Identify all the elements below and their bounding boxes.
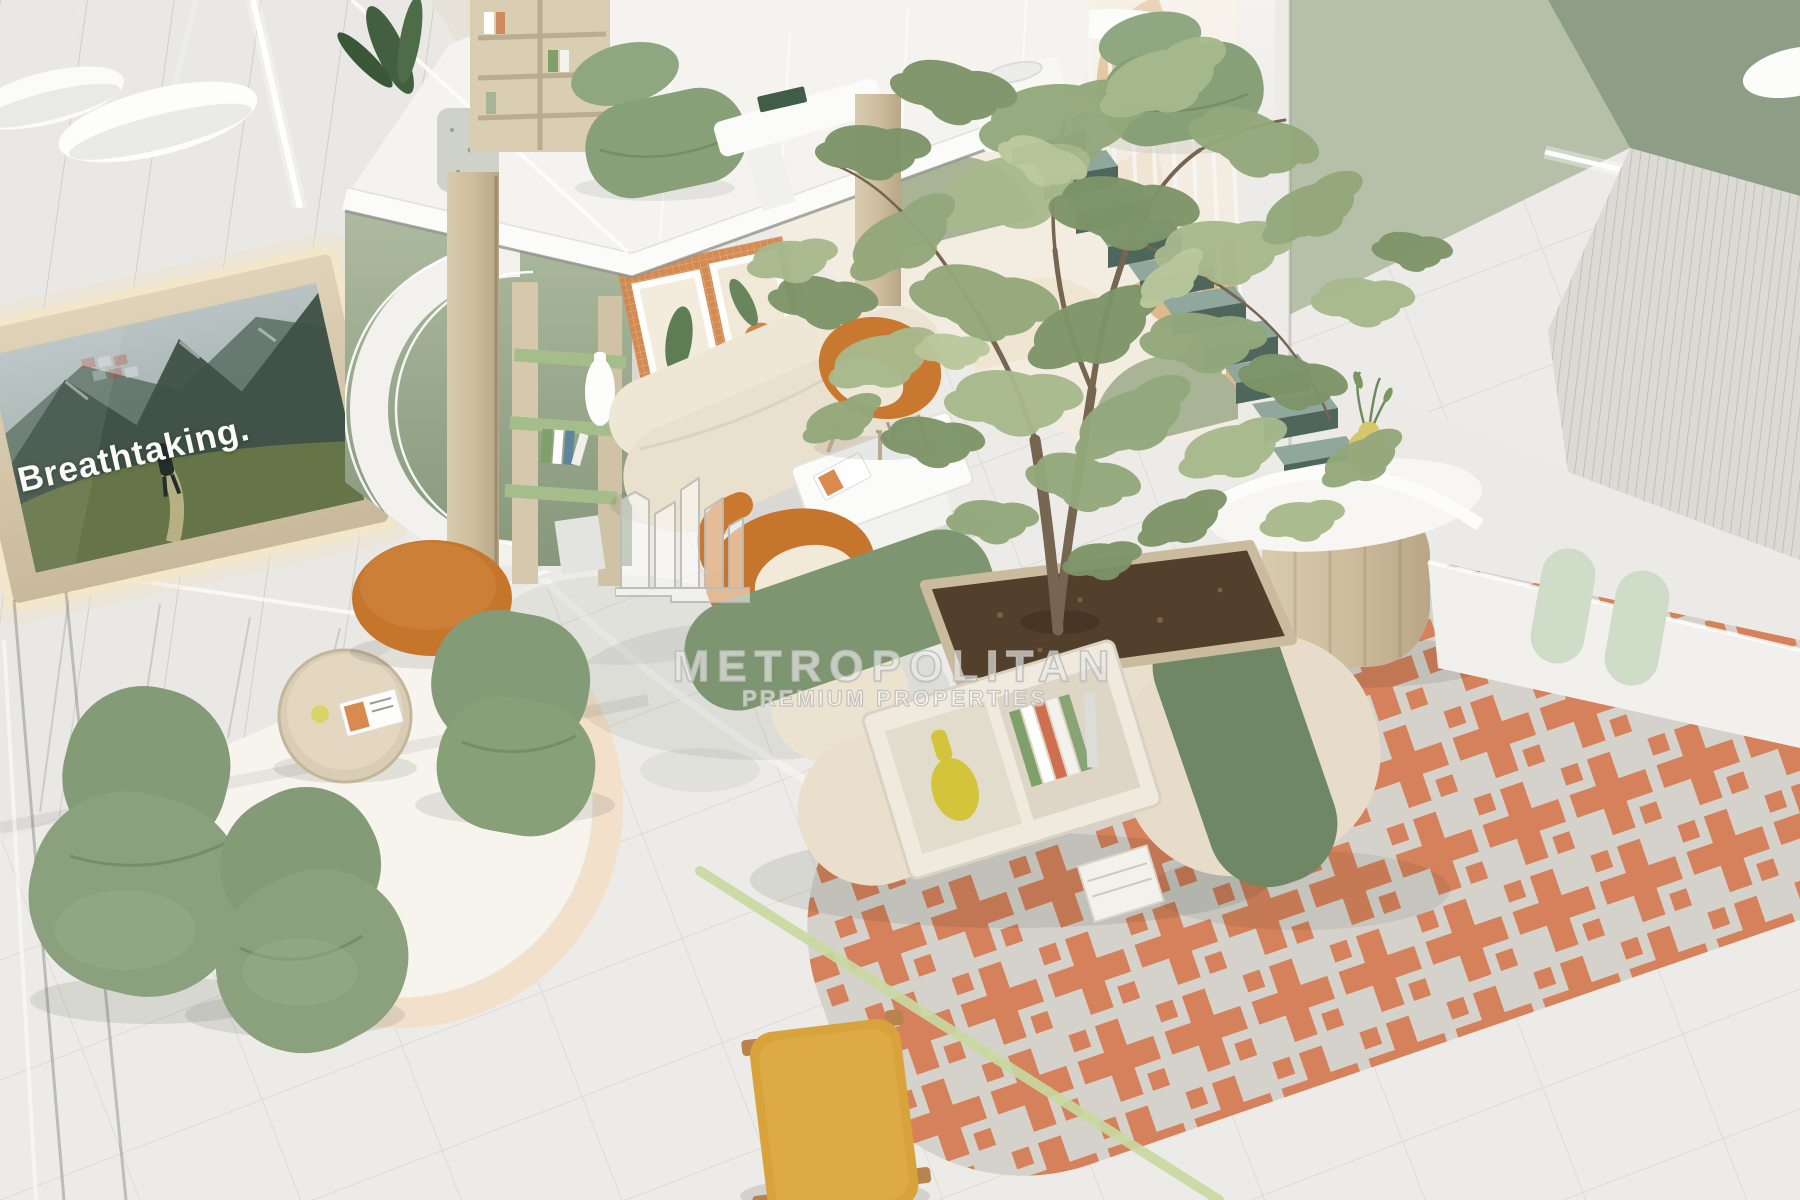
lemon-decor bbox=[311, 705, 329, 723]
waste-bin bbox=[554, 515, 605, 575]
scene-artwork bbox=[0, 0, 1800, 1200]
lobby-render-image: Breathtaking. METROPOLITAN PREMIUM PROPE… bbox=[0, 0, 1800, 1200]
wood-post-left bbox=[447, 172, 499, 566]
